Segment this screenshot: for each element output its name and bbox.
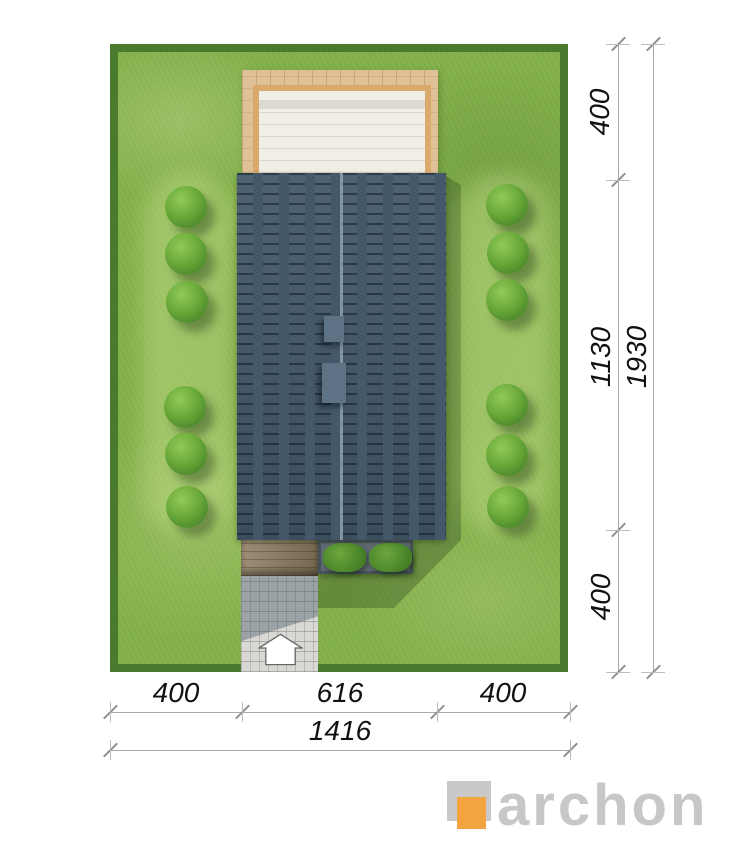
logo-orange-square-icon bbox=[457, 797, 486, 829]
entrance-deck bbox=[241, 540, 318, 576]
rear-terrace-inner bbox=[253, 85, 431, 173]
dimension-label-right-top: 400 bbox=[586, 89, 614, 136]
planter-box bbox=[318, 540, 413, 574]
tree bbox=[486, 279, 528, 321]
brand-logo-text: archon bbox=[497, 777, 708, 835]
dimension-label-right-middle: 1130 bbox=[587, 327, 615, 387]
site-plan: 400 1130 400 1930 400 616 400 1416 archo… bbox=[0, 0, 734, 854]
tree bbox=[165, 186, 207, 228]
tree bbox=[487, 486, 529, 528]
tree bbox=[486, 384, 528, 426]
house-roof bbox=[237, 173, 446, 540]
tree bbox=[486, 434, 528, 476]
entrance-arrow-icon bbox=[258, 633, 303, 666]
dimension-line-bottom-inner bbox=[110, 712, 570, 713]
bush bbox=[369, 543, 412, 572]
tree bbox=[487, 232, 529, 274]
lawn-light-trail bbox=[458, 172, 550, 534]
dimension-line-right-outer bbox=[653, 44, 654, 672]
chimney bbox=[322, 363, 346, 403]
dimension-label-bottom-total: 1416 bbox=[309, 717, 371, 745]
tree bbox=[486, 184, 528, 226]
tree bbox=[165, 233, 207, 275]
dimension-line-bottom-outer bbox=[110, 750, 570, 751]
tree bbox=[166, 281, 208, 323]
dimension-label-right-total: 1930 bbox=[623, 326, 651, 388]
driveway-paving bbox=[241, 576, 318, 672]
chimney bbox=[324, 316, 344, 342]
dimension-line-right-inner bbox=[618, 44, 619, 672]
roof-ridge bbox=[340, 173, 343, 540]
dimension-label-bottom-left: 400 bbox=[153, 679, 200, 707]
lawn-light-trail bbox=[142, 174, 234, 534]
tree bbox=[165, 433, 207, 475]
dimension-label-right-bottom: 400 bbox=[587, 574, 615, 621]
plot-lawn bbox=[110, 44, 568, 672]
bush bbox=[323, 543, 366, 572]
dimension-label-bottom-middle: 616 bbox=[317, 679, 364, 707]
rear-terrace bbox=[242, 70, 438, 173]
dimension-label-bottom-right: 400 bbox=[480, 679, 527, 707]
tree bbox=[164, 386, 206, 428]
tree bbox=[166, 486, 208, 528]
